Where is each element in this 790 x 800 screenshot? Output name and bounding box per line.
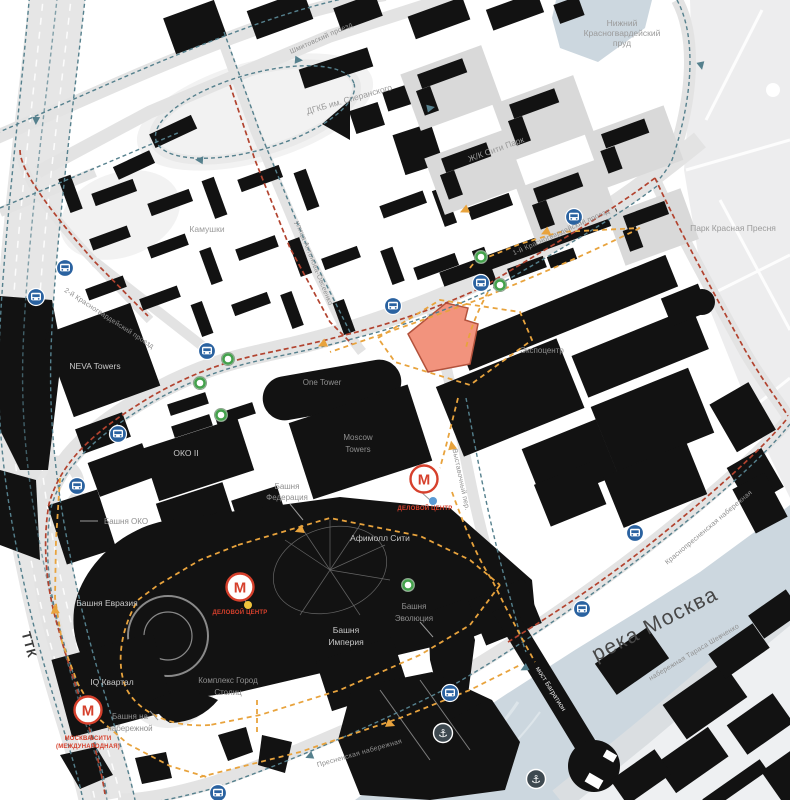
- neva-towers-label: NEVA Towers: [69, 361, 120, 371]
- nab-tower-label: набережной: [107, 724, 152, 733]
- metro-station-icon[interactable]: [75, 697, 102, 724]
- iq-label: IQ Квартал: [90, 677, 133, 687]
- metro-station-icon[interactable]: [227, 574, 254, 601]
- tram-stop-icon[interactable]: [494, 279, 507, 292]
- bus-stop-icon[interactable]: [627, 525, 644, 542]
- park-label: Парк Красная Пресня: [690, 223, 776, 233]
- tram-stop-icon[interactable]: [215, 409, 228, 422]
- bus-stop-icon[interactable]: [57, 260, 74, 277]
- metro-station-icon[interactable]: [411, 466, 438, 493]
- metro-label-delovoy: ДЕЛОВОЙ ЦЕНТР: [398, 504, 453, 512]
- bus-stop-icon[interactable]: [385, 298, 402, 315]
- bus-stop-icon[interactable]: [574, 601, 591, 618]
- pond-label: Красногвардейский: [584, 28, 661, 38]
- bus-stop-icon[interactable]: [110, 426, 127, 443]
- moscow-towers-label: Towers: [345, 445, 370, 454]
- moscow-towers-label: Moscow: [343, 433, 373, 442]
- federation-label: Башня: [275, 482, 300, 491]
- anchor-pier-icon[interactable]: [434, 724, 453, 743]
- evolution-label: Башня: [402, 602, 427, 611]
- anchor-pier-icon[interactable]: [527, 770, 546, 789]
- bus-stop-icon[interactable]: [28, 289, 45, 306]
- tram-stop-icon[interactable]: [194, 377, 207, 390]
- bus-stop-icon[interactable]: [69, 478, 86, 495]
- federation-label: Федерация: [266, 493, 308, 502]
- bus-stop-icon[interactable]: [199, 343, 216, 360]
- bus-stop-icon[interactable]: [210, 785, 227, 800]
- nab-tower-label: Башня на: [112, 712, 149, 721]
- buildings-center: [259, 356, 432, 499]
- one-tower-label: One Tower: [303, 378, 342, 387]
- tram-stop-icon[interactable]: [475, 251, 488, 264]
- tram-stop-icon[interactable]: [402, 579, 415, 592]
- oko-tower-label: Башня ОКО: [104, 517, 148, 526]
- evolution-label: Эволюция: [395, 614, 433, 623]
- bus-stop-icon[interactable]: [442, 685, 459, 702]
- metro-label-moskva-city: МОСКВА-СИТИ: [65, 736, 112, 742]
- pond-label: Нижний: [607, 18, 638, 28]
- tram-stop-icon[interactable]: [222, 353, 235, 366]
- capitals-label: Столиц: [214, 688, 242, 697]
- map-canvas[interactable]: М ⚓: [0, 0, 790, 800]
- pond-label: пруд: [613, 38, 631, 48]
- metro-label-moskva-city: (МЕЖДУНАРОДНАЯ): [56, 744, 120, 750]
- moscow-city-map[interactable]: М ⚓: [0, 0, 790, 800]
- afimall-label: Афимолл Сити: [350, 533, 410, 543]
- oko2-label: ОКО II: [173, 448, 198, 458]
- metro-label-delovoy: ДЕЛОВОЙ ЦЕНТР: [213, 608, 268, 616]
- capitals-label: Комплекс Город: [198, 676, 258, 685]
- imperia-label: Башня: [333, 625, 360, 635]
- buildings-north: [58, 0, 621, 337]
- bus-stop-icon[interactable]: [473, 275, 490, 292]
- eurasia-label: Башня Евразия: [76, 598, 138, 608]
- kamushki-label: Камушки: [189, 224, 224, 234]
- expocentre-label: Экспоцентр: [520, 346, 564, 355]
- imperia-label: Империя: [328, 637, 364, 647]
